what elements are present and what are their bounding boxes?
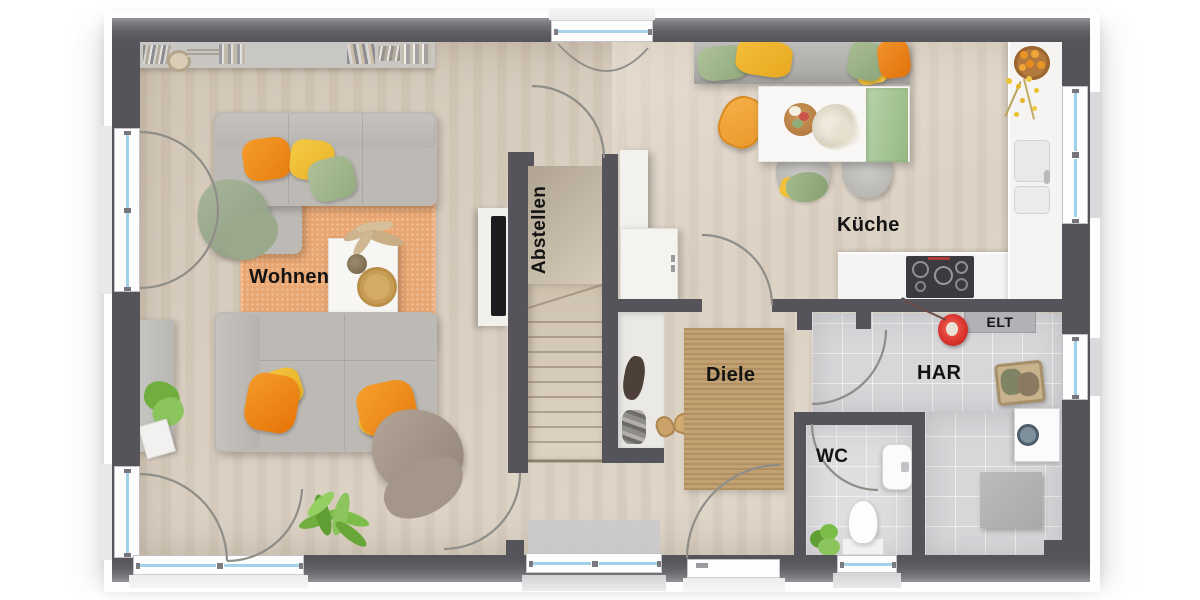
room-label-diele: Diele — [706, 364, 755, 387]
wall-niche-bottom — [602, 448, 664, 463]
fruit — [1026, 60, 1034, 68]
table-runner-green — [866, 88, 908, 162]
decor-tray — [357, 267, 397, 307]
wall-kitchen-south-right — [772, 299, 1064, 312]
wall-stairs-left — [508, 152, 528, 473]
wall-corner-notch — [1044, 540, 1064, 557]
wall-har-duct — [856, 312, 871, 329]
wall-wc-har — [912, 412, 925, 557]
fruit — [1031, 50, 1039, 58]
palm-plant — [294, 486, 374, 560]
window-sill — [522, 575, 666, 591]
elt-panel: ELT — [964, 310, 1036, 333]
window-sill — [833, 573, 901, 588]
wall-kitchen-south-left — [614, 299, 702, 312]
window-sill — [129, 575, 308, 588]
books — [378, 46, 400, 61]
window-kitchen — [1062, 86, 1088, 224]
tv-screen — [491, 216, 506, 316]
room-label-wc: WC — [816, 446, 848, 468]
fruit — [1019, 64, 1026, 71]
vacuum-detail — [946, 322, 958, 336]
window-sill — [1090, 92, 1102, 218]
cushion-seam — [260, 360, 435, 361]
room-label-wohnen: Wohnen — [249, 266, 329, 289]
books — [401, 44, 431, 64]
staircase — [528, 284, 602, 462]
cooktop-controls — [928, 257, 950, 260]
room-label-abstellen: Abstellen — [529, 186, 551, 274]
books — [219, 44, 245, 64]
kitchen-tall-cabinet — [620, 150, 648, 228]
babys-breath-bouquet — [828, 116, 862, 148]
window-hall — [526, 553, 662, 573]
sink-basin — [1014, 186, 1050, 214]
floor-plan: ELT — [0, 0, 1200, 600]
window-sill — [549, 8, 655, 20]
fruit — [1037, 61, 1045, 69]
door-handle — [696, 563, 708, 568]
cooktop — [906, 256, 974, 298]
flowers — [792, 119, 803, 128]
entry-step — [683, 578, 785, 592]
wall-abstellen-top-stub — [508, 152, 534, 166]
entry-door — [687, 559, 780, 578]
hall-window-mat — [528, 520, 660, 556]
pillow-orange — [876, 38, 913, 80]
yellow-flowers — [1004, 76, 1048, 122]
wall-wc-top — [794, 412, 912, 425]
room-label-har: HAR — [917, 362, 961, 385]
niche-shoes — [622, 410, 646, 444]
laundry-basket — [994, 360, 1046, 407]
toilet-bowl — [848, 500, 878, 544]
wc-sink — [882, 444, 912, 490]
room-label-kueche: Küche — [837, 214, 900, 237]
elt-label: ELT — [987, 314, 1014, 330]
window-har — [1062, 334, 1088, 400]
window-sill — [100, 464, 112, 560]
fruit — [1020, 51, 1028, 59]
window-sill — [100, 126, 112, 294]
washing-machine — [1014, 408, 1060, 462]
bookshelf — [137, 42, 435, 68]
pillow-orange — [240, 135, 293, 183]
kitchen-appliance-cabinet — [620, 228, 678, 302]
window-terrace — [133, 555, 304, 575]
wall-bottom-stub — [506, 540, 524, 557]
cushion-seam — [362, 114, 363, 204]
window-wc — [837, 555, 897, 573]
window-top — [551, 20, 653, 42]
wall-wc-left — [794, 412, 806, 557]
hall-rug-jute — [684, 328, 784, 490]
window-living-left — [114, 128, 140, 292]
dryer-box — [980, 472, 1042, 528]
books — [347, 44, 375, 64]
window-sill — [1090, 338, 1102, 396]
faucet — [1044, 170, 1050, 184]
cushion-seam — [344, 314, 345, 450]
window-living-left-lower — [114, 466, 140, 558]
wall-diele-har-stub — [797, 312, 812, 330]
